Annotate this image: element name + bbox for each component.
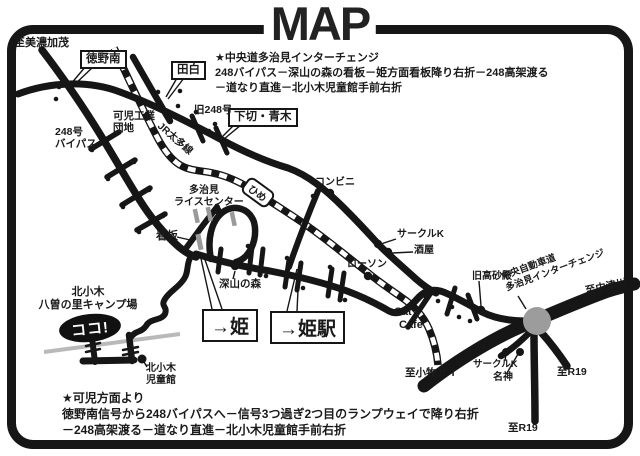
dot-circle-k-north: [374, 240, 382, 248]
label-to-r19-south: 至R19: [508, 422, 538, 434]
dot-circle-k-south: [502, 348, 510, 356]
dot-conbini: [326, 189, 334, 197]
dot-takasagoden: [477, 306, 485, 314]
label-248-bypass: 248号 バイパス: [55, 126, 97, 150]
label-to-r19-east: 至R19: [557, 366, 587, 378]
route-note-top-line2: 248バイパス－深山の森の看板－姫方面看板降り右折－248高架渡る: [215, 66, 548, 81]
label-camp: 北小木 八曽の里キャンプ場: [33, 286, 143, 311]
road-branch-r19-east: [540, 331, 567, 366]
road-camp-h: [83, 360, 134, 361]
label-lawson: ローソン: [347, 259, 387, 271]
label-meishin: 名神: [493, 372, 513, 384]
route-note-bottom: ★可児方面より 徳野南信号から248バイパスへ－信号3つ過ぎ2つ目のランプウェイ…: [62, 390, 479, 439]
dot-liquor-shop: [384, 248, 392, 256]
route-note-top: ★中央道多治見インターチェンジ 248バイパス－深山の森の看板－姫方面看板降り右…: [215, 51, 548, 96]
route-note-top-line3: －道なり直進－北小木児童館手前右折: [215, 81, 548, 96]
dot-meishin: [516, 348, 524, 356]
label-rice-center: 多治見 ライスセンター: [174, 185, 234, 208]
tajimi-interchange-circle: [523, 307, 551, 335]
label-conbini: コンビニ: [315, 177, 355, 189]
label-miyama-no-mori: 深山の森: [219, 278, 261, 290]
label-old-248: 旧248号: [194, 104, 233, 116]
label-jidokan: 北小木 児童館: [146, 363, 176, 386]
dot-lawson: [364, 272, 372, 280]
route-note-top-line1: ★中央道多治見インターチェンジ: [215, 51, 548, 66]
label-to-minokamo: 至美濃加茂: [14, 37, 69, 50]
route-note-bottom-line3: －248高架渡る－道なり直進－北小木児童館手前右折: [62, 422, 479, 438]
label-circle-k-south: サークルK: [473, 360, 518, 371]
label-circle-k-north: サークルK: [397, 229, 444, 241]
label-to-komaki-jct: 至小牧JCT: [405, 367, 456, 379]
sign-tokuno-minami: 徳野南: [80, 50, 127, 69]
map-canvas: MAP ★中央道多治見インターチェンジ 248バイパス－深山の森の看板－姫方面看…: [0, 0, 640, 456]
label-kani-industrial: 可児工業 団地: [113, 110, 155, 134]
sign-hime: →姫: [202, 309, 258, 342]
label-liquor-shop: 酒屋: [414, 245, 434, 257]
sign-hime-station: →姫駅: [270, 311, 345, 344]
dot-miyama: [231, 262, 239, 270]
page-title: MAP: [264, 0, 376, 51]
route-note-bottom-line1: ★可児方面より: [62, 390, 479, 406]
route-note-bottom-line2: 徳野南信号から248バイパスへ－信号3つ過ぎ2つ目のランプウェイで降り右折: [62, 406, 479, 422]
sign-shimogiri-aoki: 下切・青木: [228, 108, 298, 127]
road-branch-r19-south: [534, 334, 535, 421]
label-signboard: 看板: [156, 230, 178, 243]
label-cats-cafe: Cat's Cafe: [394, 306, 423, 331]
sign-tashiro: 田白: [171, 61, 206, 80]
